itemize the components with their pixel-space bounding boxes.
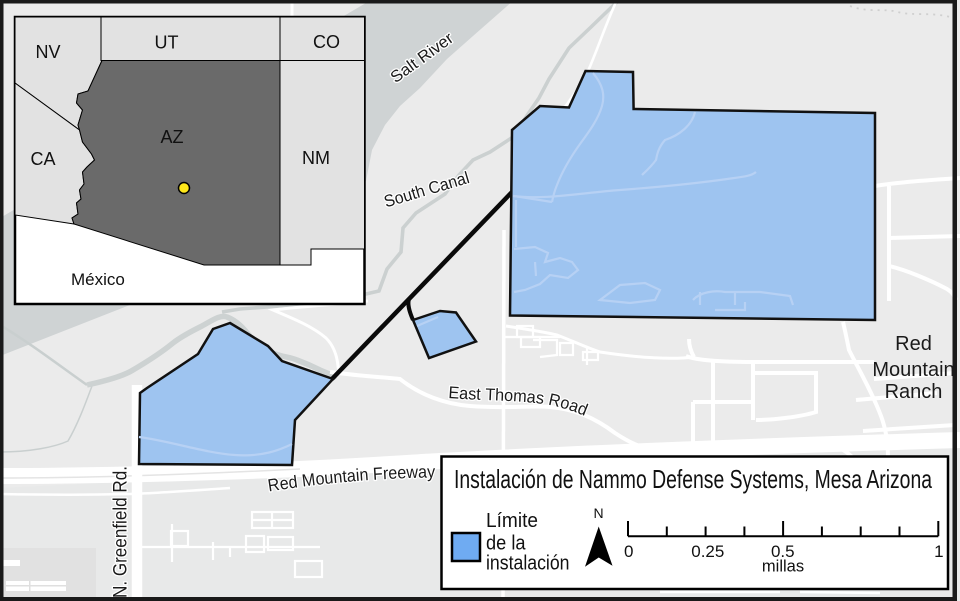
svg-text:0.25: 0.25: [691, 542, 724, 561]
svg-text:Límite: Límite: [486, 510, 538, 532]
svg-text:UT: UT: [155, 33, 179, 53]
svg-text:México: México: [71, 270, 125, 289]
svg-text:Instalación de Nammo Defense S: Instalación de Nammo Defense Systems, Me…: [454, 464, 932, 494]
svg-text:millas: millas: [762, 558, 804, 576]
svg-text:CO: CO: [313, 32, 340, 52]
svg-text:Ranch: Ranch: [885, 381, 943, 403]
svg-text:CA: CA: [31, 149, 56, 169]
svg-text:NM: NM: [302, 148, 330, 168]
svg-text:NV: NV: [36, 42, 61, 62]
svg-text:Red: Red: [895, 333, 932, 355]
svg-text:AZ: AZ: [161, 127, 184, 147]
svg-text:N: N: [594, 505, 604, 521]
svg-text:1: 1: [934, 542, 943, 561]
svg-text:de la: de la: [486, 533, 526, 555]
svg-text:0: 0: [624, 542, 633, 561]
svg-text:instalación: instalación: [486, 553, 570, 575]
svg-text:N. Greenfield Rd.: N. Greenfield Rd.: [111, 466, 132, 598]
svg-text:Mountain: Mountain: [872, 359, 954, 381]
